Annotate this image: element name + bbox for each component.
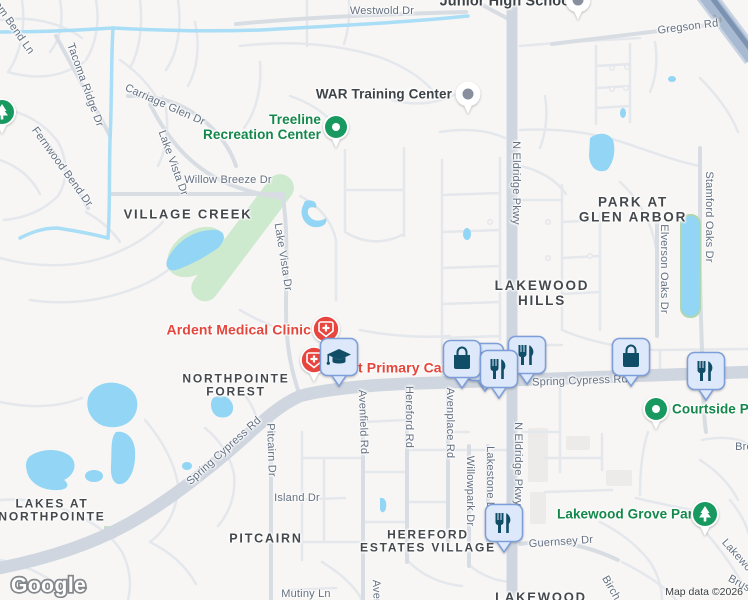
highway [705, 0, 748, 58]
google-logo-text: Google [11, 574, 86, 597]
map-view[interactable]: Westwold DrGregson Rdam Bend LnTacoma Ri… [0, 0, 748, 600]
map-canvas[interactable] [0, 0, 748, 600]
buildings [528, 428, 632, 524]
map-attribution: Map data ©2026 [665, 586, 743, 598]
google-logo[interactable]: Google [8, 572, 88, 598]
